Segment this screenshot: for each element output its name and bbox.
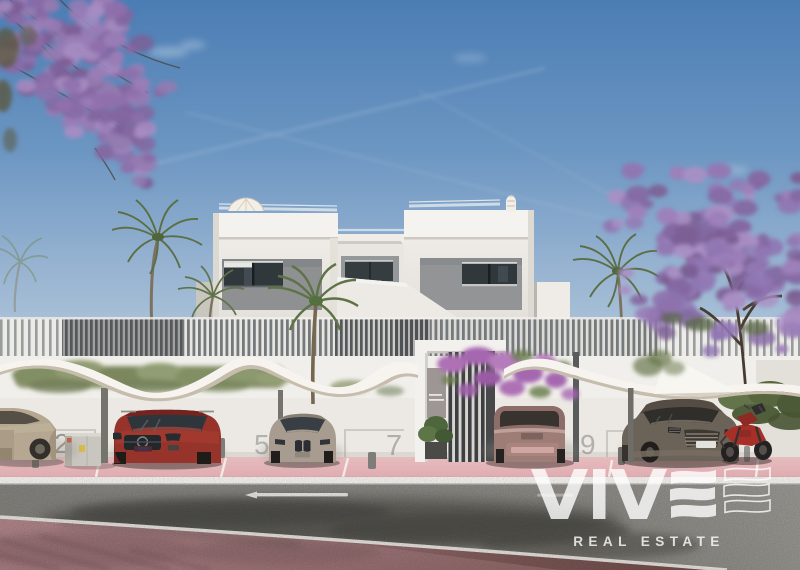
svg-text:REAL ESTATE: REAL ESTATE xyxy=(573,534,725,549)
svg-text:9: 9 xyxy=(580,429,596,460)
